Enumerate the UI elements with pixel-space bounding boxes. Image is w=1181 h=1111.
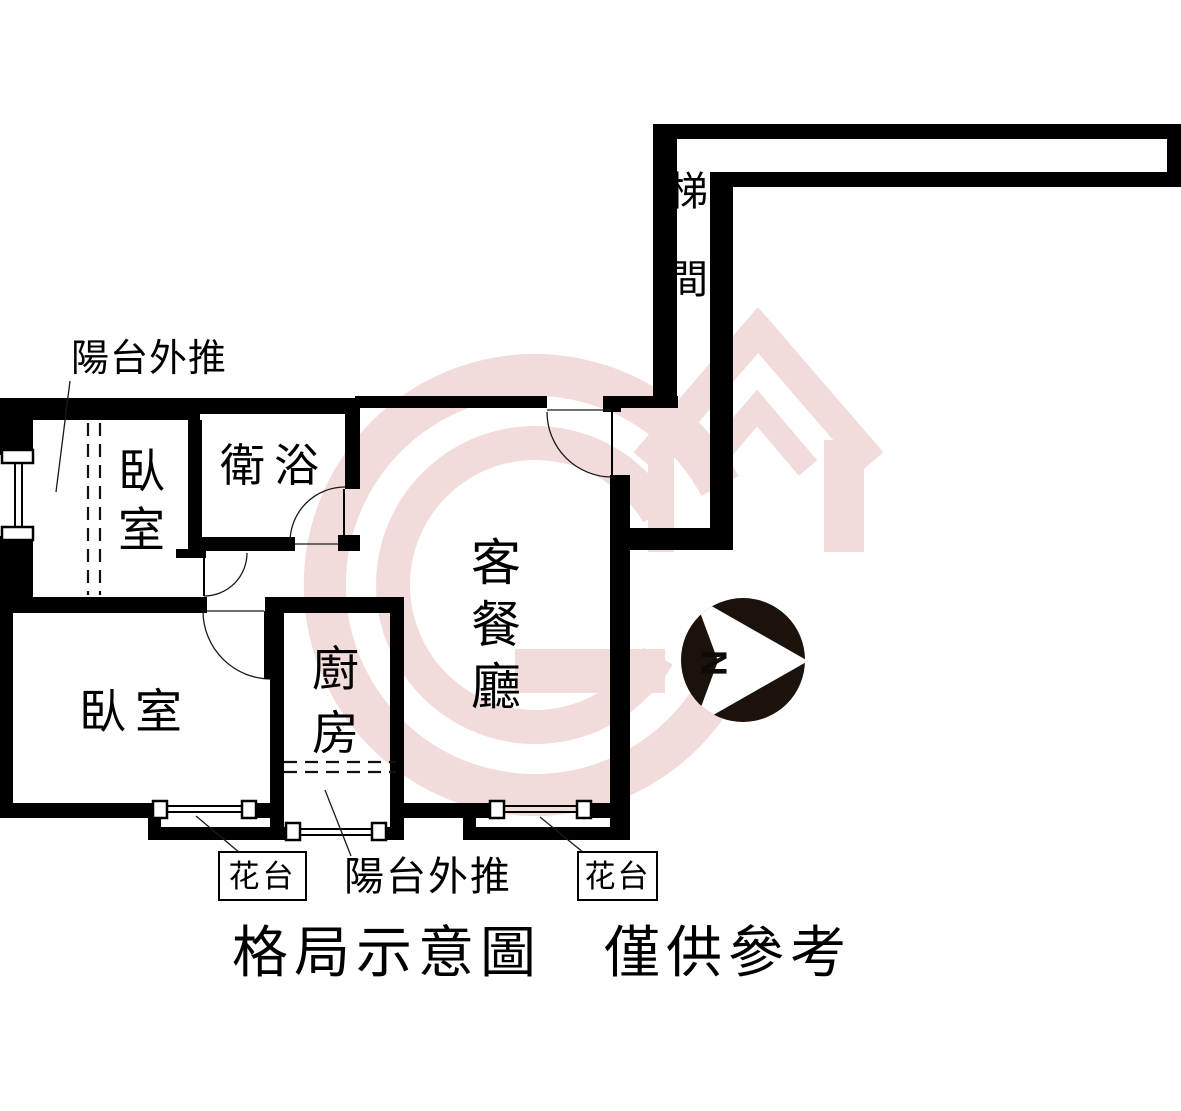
- wall-segment: [338, 535, 360, 551]
- room-label-stairwell: 梯間: [664, 170, 704, 346]
- stairwell-end-wall: [1167, 124, 1181, 187]
- planter-step: [463, 813, 476, 829]
- planter-wall: [148, 827, 278, 840]
- annotation-planter-left: 花台: [229, 861, 297, 892]
- leader-line: [56, 381, 70, 492]
- left-wall: [0, 398, 33, 455]
- wall-segment: [176, 549, 206, 558]
- room-label-kitchen: 廚房: [306, 644, 353, 772]
- room-label-living-dining: 客餐廳: [467, 536, 517, 722]
- window-cap: [286, 823, 300, 840]
- bedroom-lower-door-swing: [203, 611, 271, 679]
- vestibule-wall: [618, 528, 733, 550]
- bedroom-upper-door-swing: [204, 553, 247, 596]
- annotation-planter-left-box: 花台: [218, 851, 307, 901]
- bathroom-bottom-wall: [200, 537, 295, 551]
- window-cap: [153, 801, 167, 818]
- wall-segment: [195, 398, 360, 414]
- annotation-planter-right-box: 花台: [577, 851, 658, 901]
- window-cap: [2, 527, 33, 540]
- living-right-wall: [610, 475, 630, 840]
- window-cap: [2, 450, 33, 463]
- kitchen-right-wall: [390, 598, 404, 840]
- kitchen-top-wall: [265, 597, 404, 613]
- compass-north-letter: N: [694, 650, 735, 676]
- bathroom-left-wall: [188, 420, 202, 552]
- annotation-balcony-push-top: 陽台外推: [71, 340, 227, 378]
- wall-segment: [0, 803, 158, 818]
- window-cap: [490, 801, 504, 818]
- wall-segment: [355, 396, 547, 408]
- footer-title: 格局示意圖 僅供參考: [232, 926, 852, 982]
- window-cap: [372, 823, 386, 840]
- bathroom-right-wall: [345, 407, 360, 489]
- left-wall: [0, 536, 33, 600]
- wall-segment: [402, 803, 497, 818]
- watermark-g-bar: [515, 649, 665, 693]
- planter-wall: [463, 827, 620, 840]
- left-wall: [0, 600, 13, 817]
- stairwell-top-wall: [653, 124, 1181, 139]
- room-label-bedroom-lower: 臥室: [79, 690, 191, 737]
- leader-line: [325, 790, 351, 856]
- window-cap: [577, 801, 591, 818]
- floor-plan: N 梯間 臥室 衛浴 臥室 廚房 客餐廳 陽台外推 陽台外推 花台 花台 格局示…: [0, 0, 1181, 1111]
- window-cap: [242, 801, 256, 818]
- room-label-bedroom-upper: 臥室: [112, 446, 159, 564]
- stairwell-corridor-wall: [710, 172, 1168, 187]
- annotation-balcony-push-bottom: 陽台外推: [344, 857, 512, 897]
- bedroom-lower-door-leaf: [264, 611, 277, 679]
- room-label-bathroom: 衛浴: [220, 444, 328, 489]
- stairwell-inner-wall: [710, 172, 733, 550]
- annotation-planter-right: 花台: [585, 861, 651, 892]
